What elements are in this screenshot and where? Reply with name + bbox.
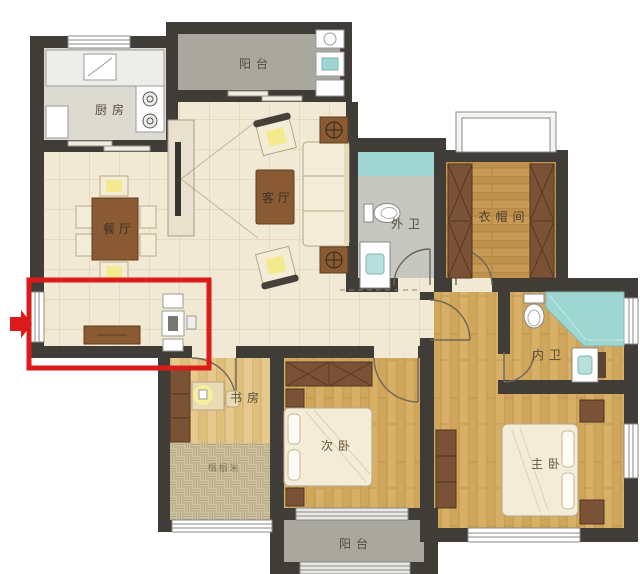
balcony-top-appliances (316, 30, 344, 96)
tv-screen (175, 142, 181, 216)
dispenser-detail (168, 316, 178, 331)
bedroom2-wardrobe (286, 362, 372, 386)
side-table-bottom (320, 247, 348, 273)
master-nightstand-bottom (580, 500, 604, 524)
label-master-bedroom: 主卧 (531, 457, 565, 471)
floor-plan-svg: 厨房 阳台 客厅 餐厅 外卫 衣帽间 内卫 主卧 次卧 书房 阳台 榻榻米 (0, 0, 640, 574)
bedroom2-pillow-2 (288, 450, 300, 480)
dining-chair-left-1 (76, 206, 92, 228)
floor-plan-image: 厨房 阳台 客厅 餐厅 外卫 衣帽间 内卫 主卧 次卧 书房 阳台 榻榻米 (0, 0, 640, 574)
wall-master-left-top (420, 292, 434, 300)
window-balcony-bottom (300, 562, 410, 574)
wall-right-outer-2 (624, 344, 638, 424)
wall-bath-inner-bottom (498, 380, 626, 394)
wall-bedroom2-top-left (284, 346, 374, 358)
window-storage-bottom (172, 520, 272, 532)
sink-shelf (598, 352, 606, 378)
wall-bath-inner-left (498, 292, 510, 354)
hall-cabinet-top (163, 294, 183, 308)
window-bedroom2-balcony (296, 508, 408, 520)
label-bath-inner: 内卫 (532, 348, 566, 362)
label-dining-room: 餐厅 (103, 221, 135, 236)
bedroom2-nightstand-bottom (286, 488, 304, 506)
bedroom2-nightstand-top (286, 389, 304, 407)
bath-outer-shower-zone (358, 152, 434, 176)
wardrobe-right (530, 164, 554, 278)
dining-chair-left-2 (76, 234, 92, 256)
wall-study-left (158, 358, 170, 532)
label-cloakroom: 衣帽间 (478, 209, 529, 224)
wall-master-left (420, 338, 434, 528)
sofa-back (344, 142, 349, 246)
label-bath-outer: 外卫 (391, 217, 425, 231)
window-master-right (624, 424, 638, 478)
master-nightstand-top (580, 400, 604, 422)
chair-cushion (106, 266, 122, 278)
bay-window-cloakroom (456, 112, 556, 152)
bedroom2-pillow-1 (288, 414, 300, 444)
label-study: 书房 (230, 390, 264, 405)
window-left-hall (30, 292, 44, 342)
kitchen-cabinet (46, 106, 68, 138)
stove-burner-2 (143, 114, 157, 128)
bookshelf (170, 370, 190, 442)
cloakroom-door-threshold (452, 278, 492, 292)
vanity-basin (366, 254, 384, 274)
toilet-tank-inner (524, 294, 544, 303)
toilet-bowl-inner (524, 304, 544, 328)
label-second-bedroom: 次卧 (321, 439, 355, 453)
desk-lamp (199, 390, 207, 399)
wall-cloakroom-right (556, 150, 568, 292)
laundry-sink-basin (322, 58, 338, 70)
hall-cabinet-bottom (163, 339, 183, 351)
chair-cushion (106, 180, 122, 192)
label-tatami: 榻榻米 (207, 462, 240, 473)
wall-right-outer-1 (624, 278, 638, 298)
wall-hall-bottom (30, 346, 170, 358)
toilet-tank (364, 204, 373, 222)
window-kitchen-top (68, 36, 130, 48)
sofa (303, 142, 349, 246)
wall-bath-outer-cloakroom (434, 138, 446, 292)
wall-study-bedroom2 (270, 346, 284, 532)
bedroom2-furniture (284, 362, 372, 506)
window-bath-inner-right (624, 298, 638, 344)
dining-chair-right-2 (140, 234, 156, 256)
wall-bedroom2-top-right (418, 346, 434, 358)
wall-storage-bottom-left (158, 520, 172, 532)
window-master-bottom (468, 528, 580, 542)
label-balcony-bottom: 阳台 (339, 536, 373, 551)
wall-bedroom2-bottom-left (270, 508, 296, 520)
tatami-floor (170, 443, 270, 520)
master-dresser (436, 430, 456, 508)
balcony-cabinet (316, 80, 344, 96)
wall-bath-outer-top (346, 138, 446, 152)
wall-storage-bottom-right (272, 520, 284, 532)
wardrobe-left (448, 164, 472, 278)
dining-chair-right-1 (140, 206, 156, 228)
stove-burner-1 (143, 92, 157, 106)
hall-small-item (187, 316, 196, 329)
sink-basin-inner (578, 356, 592, 374)
label-balcony-top: 阳台 (239, 56, 273, 71)
side-table-top (320, 117, 348, 143)
master-pillow-2 (562, 473, 574, 509)
label-kitchen: 厨房 (95, 102, 129, 117)
wall-cloakroom-bottom-left (434, 278, 452, 292)
wall-master-bottom-right (580, 528, 638, 542)
label-living-room: 客厅 (262, 190, 294, 205)
